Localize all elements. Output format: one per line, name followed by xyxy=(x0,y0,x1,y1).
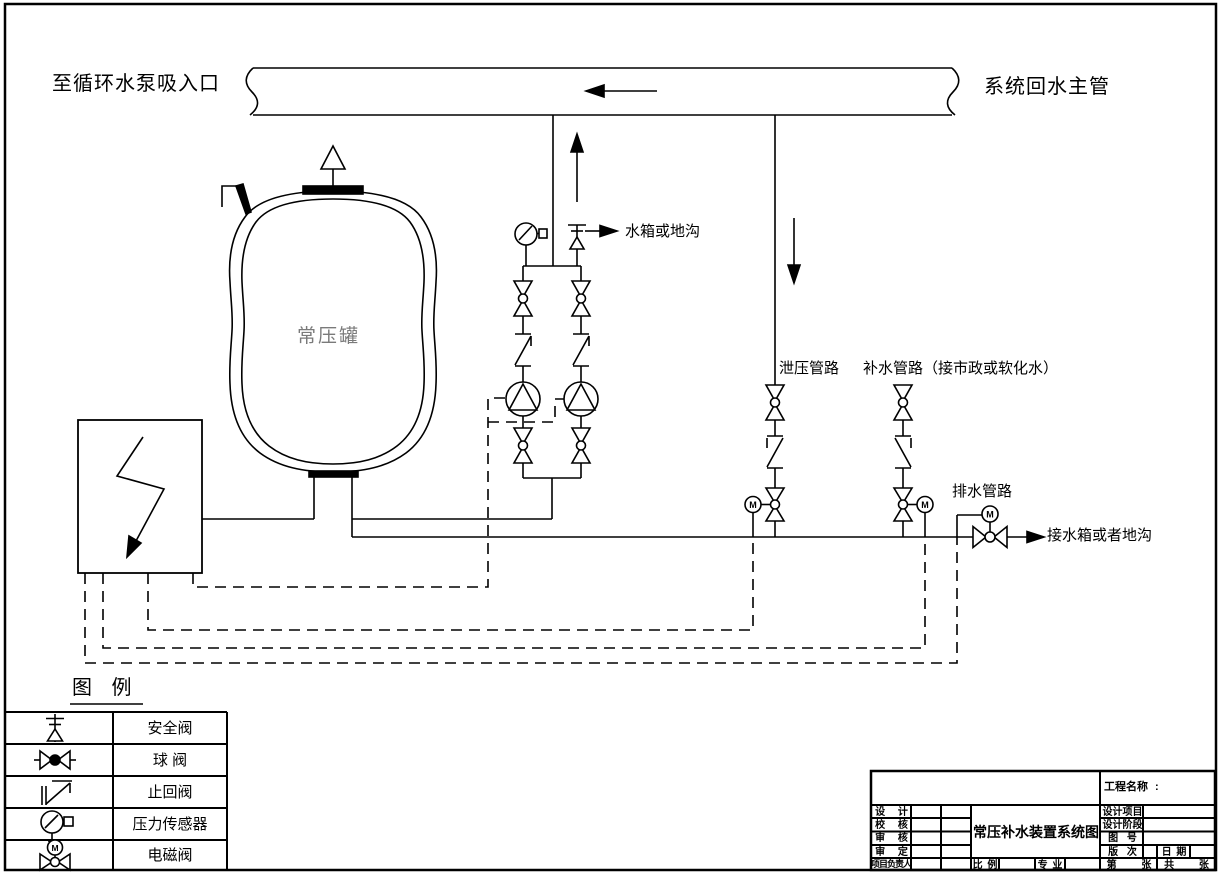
legend-item-label: 止回阀 xyxy=(113,784,227,801)
tb-date: 日 期 xyxy=(1158,847,1190,858)
tank-top-flange xyxy=(303,186,363,194)
label-relief-line: 泄压管路 xyxy=(779,360,839,377)
label-makeup-line: 补水管路（接市政或软化水） xyxy=(863,360,1058,377)
ball-valve-icon xyxy=(514,281,532,316)
motor-letter: M xyxy=(986,510,994,520)
system-diagram-canvas: M M M xyxy=(0,0,1222,875)
safety-valve-icon xyxy=(46,714,64,742)
motor-letter: M xyxy=(749,500,757,510)
tank-bottom-flange xyxy=(309,471,358,477)
tb-scale: 比 例 xyxy=(971,860,999,871)
tb-design-stage: 设计阶段 xyxy=(1102,820,1143,831)
legend-title: 图 例 xyxy=(72,677,132,700)
tb-checker: 校 核 xyxy=(872,820,911,831)
drain-solenoid-valve-icon: M xyxy=(957,506,1044,548)
pipe-break-right xyxy=(947,68,958,115)
solenoid-valve-icon: M xyxy=(894,488,933,537)
label-tank: 常压罐 xyxy=(297,326,360,348)
tb-design-project: 设计项目 xyxy=(1102,807,1143,818)
motor-letter: M xyxy=(921,500,929,510)
arrow-right-icon xyxy=(1027,532,1044,543)
legend-item-label: 球 阀 xyxy=(113,752,227,769)
ball-valve-icon xyxy=(34,751,76,769)
tb-designer: 设 计 xyxy=(872,807,911,818)
control-cabinet xyxy=(78,420,202,573)
check-valve-icon xyxy=(515,334,531,366)
pump-icon xyxy=(564,382,598,416)
tb-sheet: 第 张 xyxy=(1101,860,1157,871)
tank-side-bracket xyxy=(222,184,251,214)
relief-riser: M xyxy=(745,115,800,537)
ball-valve-icon xyxy=(514,428,532,463)
tb-project-manager: 项目负责人 xyxy=(871,860,911,870)
tb-total-sheets: 共 张 xyxy=(1158,860,1215,871)
pump-group-header xyxy=(515,223,617,266)
flow-arrow-down-icon xyxy=(788,265,800,283)
ball-valve-icon xyxy=(572,428,590,463)
legend-item-label: 安全阀 xyxy=(113,720,227,737)
tb-revision: 版 次 xyxy=(1102,847,1143,858)
solenoid-valve-icon: M xyxy=(745,488,784,537)
ball-valve-icon xyxy=(894,385,912,420)
flow-arrow-left-icon xyxy=(586,85,604,97)
pump-icon xyxy=(506,382,540,416)
ball-valve-icon xyxy=(766,385,784,420)
tb-specialty: 专 业 xyxy=(1035,860,1065,871)
tb-drawing-title: 常压补水装置系统图 xyxy=(972,825,1100,840)
pump-branch-2 xyxy=(564,266,598,478)
tb-reviewer: 审 核 xyxy=(872,833,911,844)
pressure-sensor-icon xyxy=(41,811,73,841)
check-valve-icon xyxy=(573,334,589,366)
check-valve-icon xyxy=(767,436,783,468)
label-to-tank-or-trench: 接水箱或者地沟 xyxy=(1047,527,1152,544)
arrow-right-icon xyxy=(600,226,617,237)
legend-item-label: 压力传感器 xyxy=(113,816,227,833)
legend-symbols: M xyxy=(34,714,76,870)
tb-approver: 审 定 xyxy=(872,847,911,858)
ball-valve-icon xyxy=(572,281,590,316)
tb-drawing-number: 图 号 xyxy=(1102,833,1143,844)
solenoid-valve-icon: M xyxy=(40,840,70,870)
motor-letter: M xyxy=(51,843,58,853)
suction-piping xyxy=(202,477,973,537)
label-tank-or-trench: 水箱或地沟 xyxy=(625,223,700,240)
tb-project-name: 工程名称 : xyxy=(1104,781,1159,793)
label-drain-line: 排水管路 xyxy=(952,483,1012,500)
legend-item-label: 电磁阀 xyxy=(113,847,227,864)
expansion-tank xyxy=(222,146,436,477)
check-valve-icon xyxy=(42,781,72,805)
main-return-pipe xyxy=(246,68,959,115)
pump-branch-1 xyxy=(506,266,540,478)
pipe-break-left xyxy=(246,68,257,115)
flow-arrow-up-icon xyxy=(571,134,583,152)
label-to-pump-suction: 至循环水泵吸入口 xyxy=(52,73,220,96)
makeup-riser: M xyxy=(894,385,933,537)
pressure-gauge-icon xyxy=(515,223,547,266)
check-valve-icon xyxy=(895,436,911,468)
safety-valve-icon xyxy=(568,225,617,266)
drawing-page: M M M xyxy=(0,0,1222,875)
tank-vent-icon xyxy=(321,146,345,186)
label-system-return-main: 系统回水主管 xyxy=(984,76,1110,99)
